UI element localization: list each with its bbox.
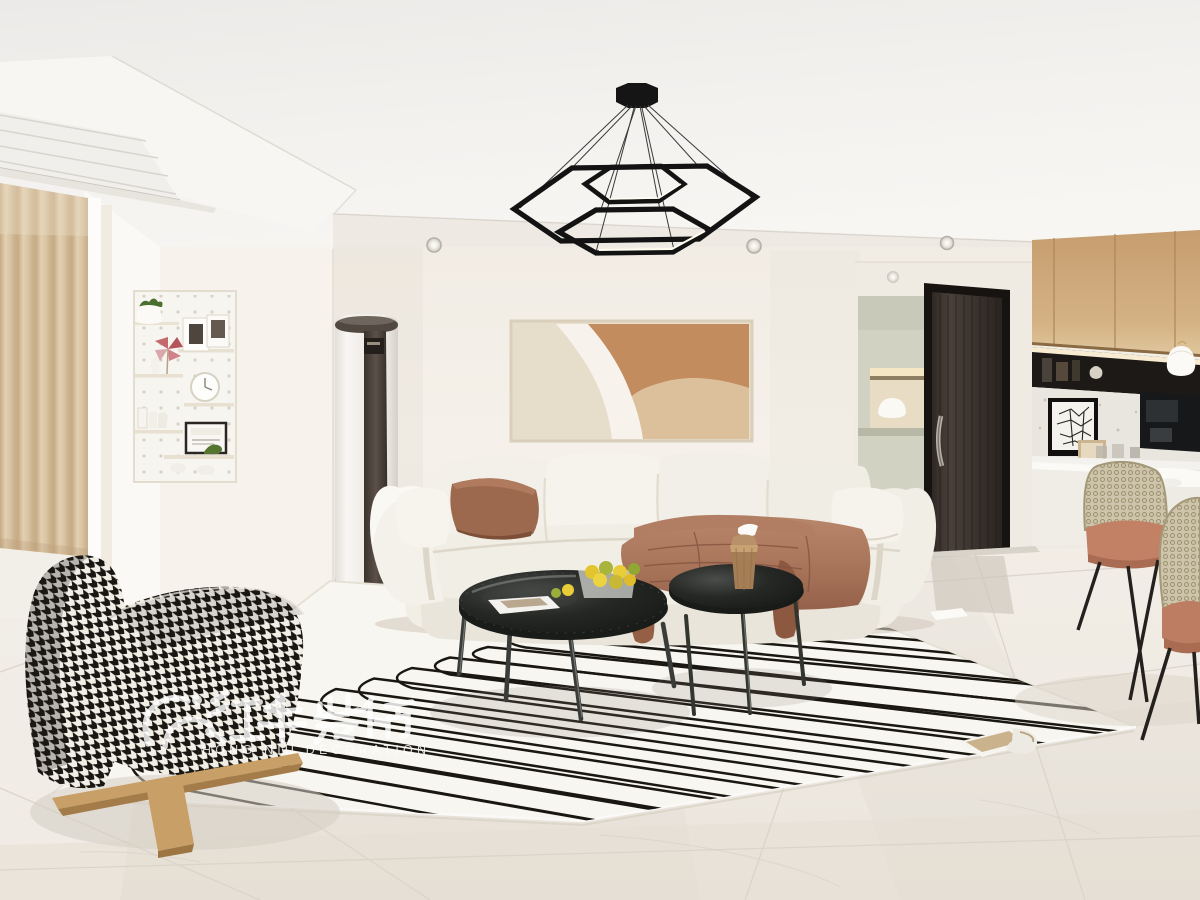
svg-text:HONG NIU DECORATION: HONG NIU DECORATION — [202, 743, 430, 757]
